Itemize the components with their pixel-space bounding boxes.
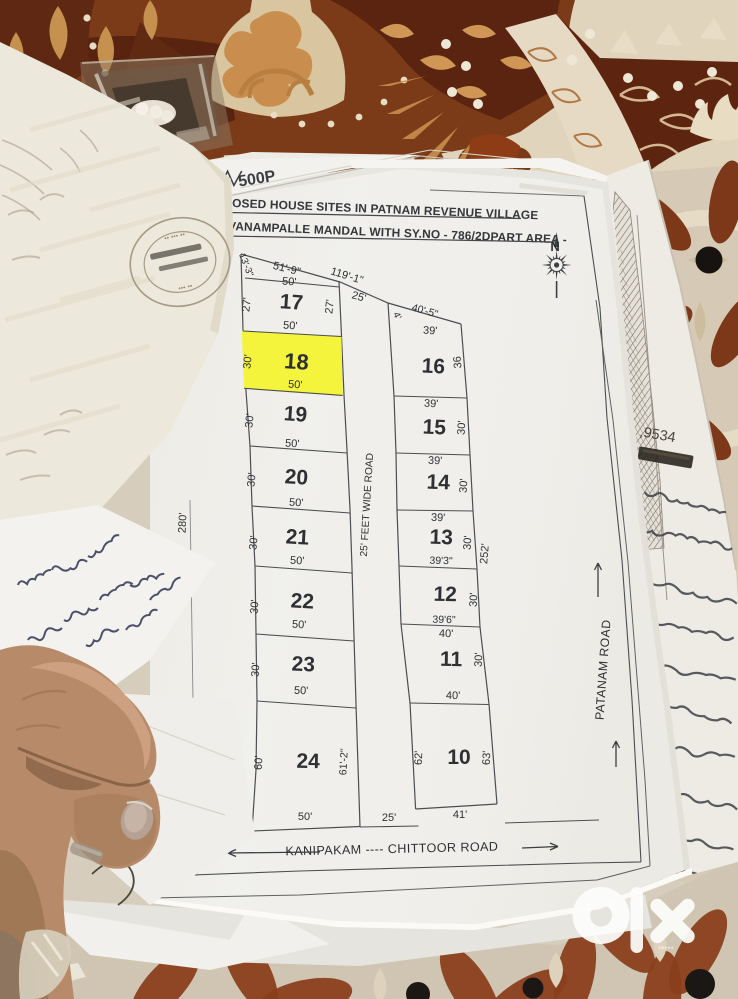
svg-text:18: 18 — [283, 348, 309, 375]
svg-text:50': 50' — [282, 276, 297, 289]
svg-text:20: 20 — [284, 465, 309, 489]
svg-text:39'3": 39'3" — [429, 555, 453, 568]
svg-text:30': 30' — [473, 652, 486, 667]
svg-text:23: 23 — [291, 653, 315, 677]
svg-text:41': 41' — [453, 809, 467, 821]
svg-text:50': 50' — [283, 320, 298, 333]
svg-text:25': 25' — [382, 812, 396, 824]
svg-text:60': 60' — [253, 755, 266, 770]
svg-text:27': 27' — [240, 297, 253, 313]
svg-text:11: 11 — [440, 648, 463, 671]
svg-text:12: 12 — [433, 583, 457, 607]
svg-text:40': 40' — [439, 628, 454, 640]
svg-text:50': 50' — [294, 685, 309, 697]
svg-text:62': 62' — [413, 751, 425, 766]
svg-text:•••••: ••••• — [658, 943, 674, 953]
svg-text:39': 39' — [424, 398, 439, 411]
svg-text:10: 10 — [447, 746, 470, 769]
svg-text:36: 36 — [452, 356, 465, 369]
svg-text:17: 17 — [279, 290, 304, 315]
svg-text:24: 24 — [296, 750, 320, 773]
svg-text:30': 30' — [462, 535, 475, 550]
svg-text:30': 30' — [241, 354, 254, 370]
svg-text:50': 50' — [290, 555, 305, 568]
svg-text:61'-2": 61'-2" — [337, 748, 350, 776]
svg-text:30': 30' — [245, 472, 258, 487]
svg-text:50': 50' — [298, 811, 312, 823]
svg-text:14: 14 — [426, 471, 450, 495]
svg-text:280': 280' — [176, 512, 189, 533]
svg-text:15: 15 — [422, 416, 447, 440]
svg-text:252': 252' — [478, 543, 492, 564]
svg-text:19: 19 — [283, 402, 308, 427]
svg-text:39': 39' — [428, 455, 443, 467]
svg-text:30': 30' — [458, 478, 471, 493]
svg-text:30': 30' — [250, 662, 263, 677]
svg-text:30': 30' — [468, 592, 481, 607]
svg-text:50': 50' — [292, 619, 307, 632]
svg-text:50': 50' — [288, 379, 303, 392]
svg-text:39': 39' — [423, 325, 438, 338]
svg-text:13: 13 — [429, 526, 453, 550]
svg-text:21: 21 — [285, 525, 310, 549]
svg-text:39': 39' — [431, 512, 446, 524]
svg-text:39'6": 39'6" — [432, 614, 456, 626]
svg-text:N: N — [550, 239, 559, 254]
svg-text:30': 30' — [247, 535, 260, 550]
svg-text:40': 40' — [446, 690, 460, 702]
svg-text:50': 50' — [289, 497, 304, 510]
svg-text:30': 30' — [249, 599, 262, 614]
svg-text:30': 30' — [456, 420, 469, 435]
svg-text:22: 22 — [290, 589, 315, 613]
svg-text:30': 30' — [243, 413, 256, 429]
svg-text:16: 16 — [421, 354, 446, 378]
svg-text:63': 63' — [481, 751, 493, 766]
svg-text:27': 27' — [323, 299, 336, 315]
